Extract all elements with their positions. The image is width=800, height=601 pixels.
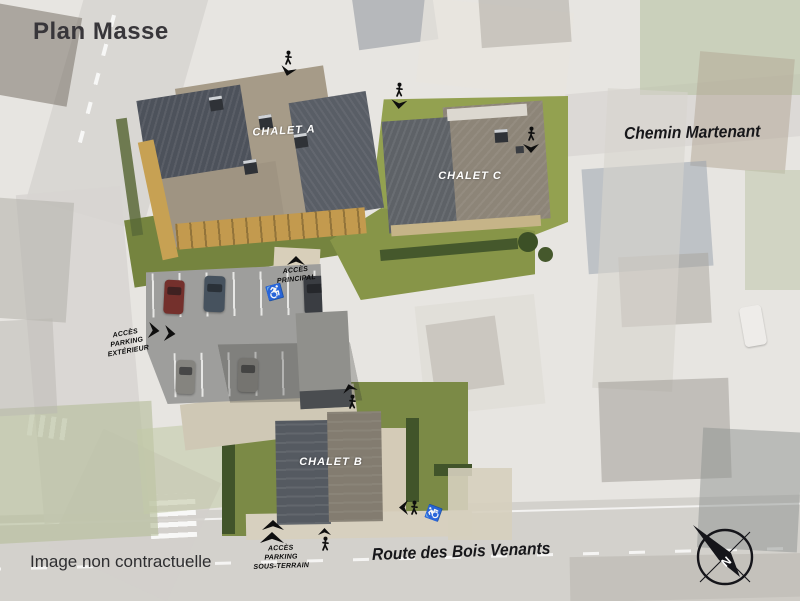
pedestrian-icon <box>283 50 294 66</box>
access-arrow-icon <box>523 144 539 153</box>
chalet-c-label: CHALET C <box>422 170 518 182</box>
wheelchair-road-icon: ♿ <box>424 503 445 524</box>
access-arrow-icon <box>287 256 305 265</box>
chalet-b-label: CHALET B <box>283 456 379 468</box>
compass-icon: N <box>686 518 762 594</box>
annotation-layer: CHALET A CHALET C CHALET B ACCÈS PRINCIP… <box>0 0 800 601</box>
pedestrian-icon <box>409 500 420 516</box>
disclaimer-text: Image non contractuelle <box>30 552 211 572</box>
chalet-a-label: CHALET A <box>236 122 332 139</box>
street-route-des-bois-venants: Route des Bois Venants <box>372 539 551 565</box>
page-title: Plan Masse <box>33 18 169 46</box>
access-arrow-icon <box>260 532 284 543</box>
access-parking-sous-terrain-label: ACCÈS PARKING SOUS-TERRAIN <box>248 544 315 573</box>
plan-masse-canvas: ♿ <box>0 0 800 601</box>
access-arrow-icon <box>341 382 358 394</box>
pedestrian-icon <box>320 536 331 552</box>
access-arrow-icon <box>399 500 408 515</box>
access-arrow-icon <box>279 65 297 78</box>
pedestrian-icon <box>526 126 537 142</box>
access-arrow-icon <box>262 520 284 530</box>
access-principal-label: ACCÈS PRINCIPAL <box>267 264 325 287</box>
access-arrow-icon <box>391 99 408 109</box>
street-chemin-martenant: Chemin Martenant <box>624 122 761 144</box>
access-arrow-icon <box>318 528 331 535</box>
pedestrian-icon <box>347 394 358 410</box>
access-parking-exterieur-label: ACCÈS PARKING EXTÉRIEUR <box>102 326 152 360</box>
access-arrow-icon <box>164 325 176 342</box>
access-arrow-icon <box>148 322 160 339</box>
pedestrian-icon <box>394 82 405 98</box>
